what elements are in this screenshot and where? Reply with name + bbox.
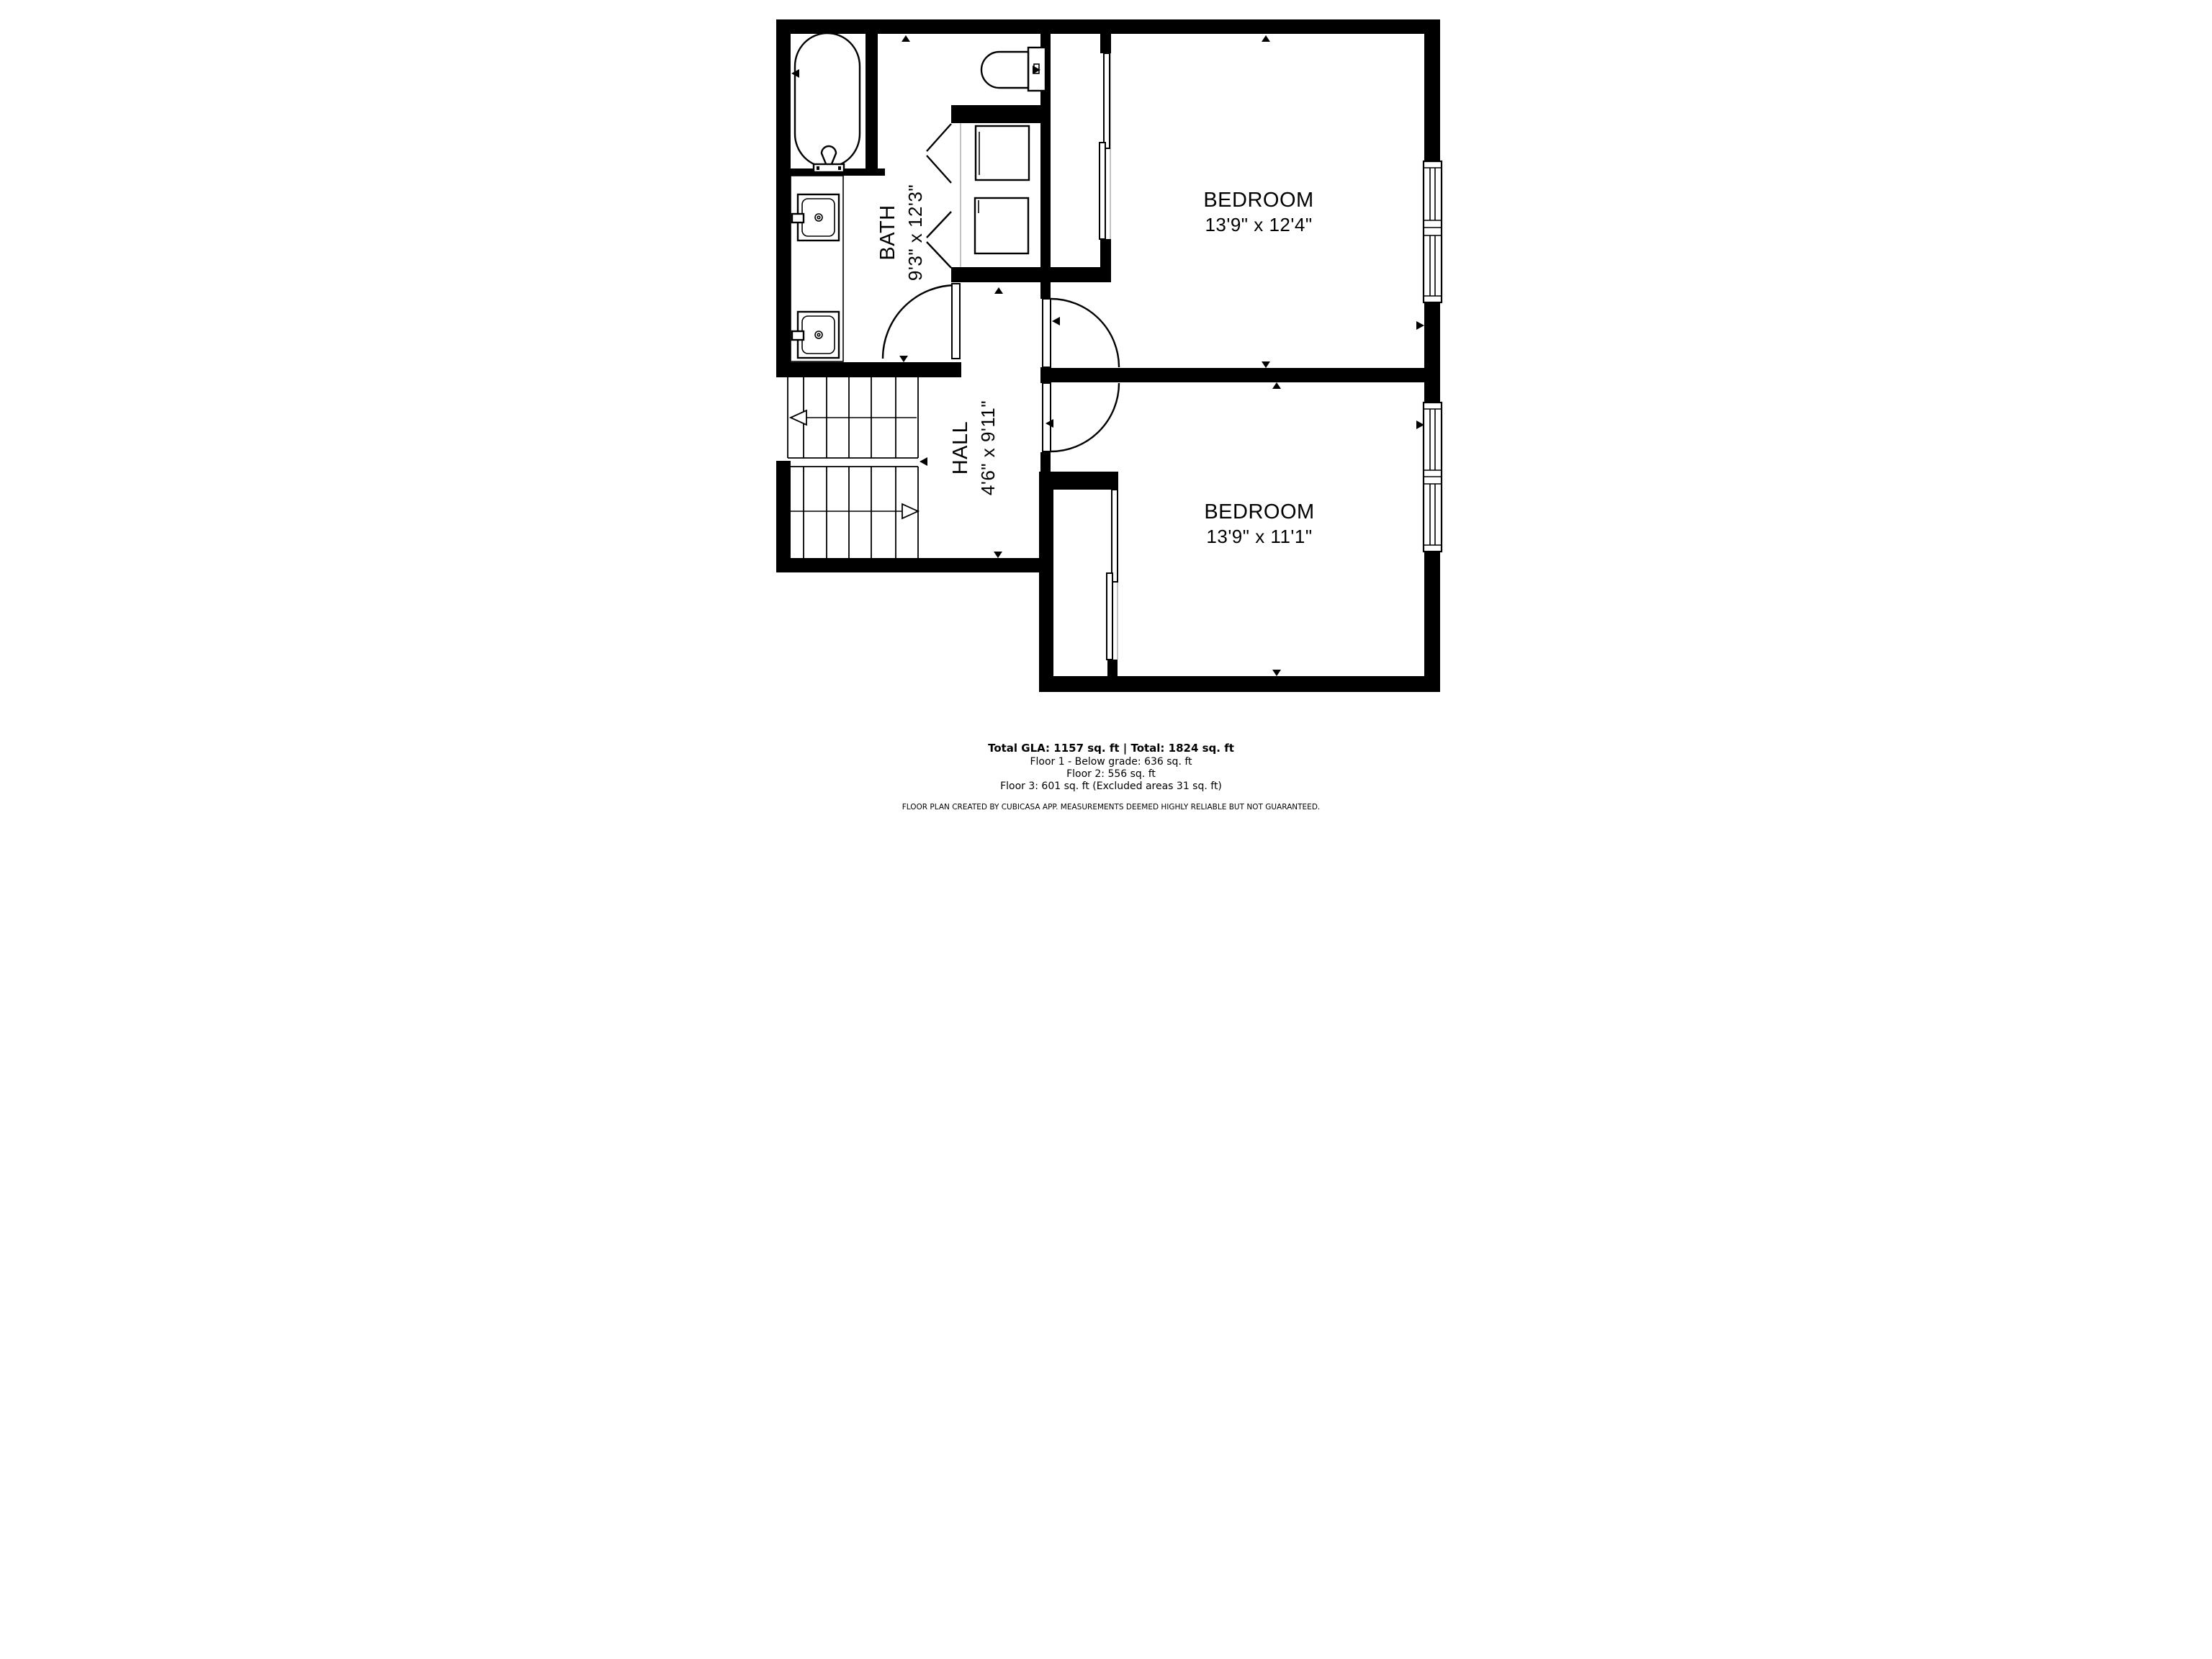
- wall-hall-east-b: [1040, 367, 1051, 383]
- room-label-bedroom-bottom: BEDROOM: [1204, 500, 1314, 523]
- marker-right-bedroom-top-window: [1416, 321, 1424, 330]
- stair-arrow-up-head: [791, 410, 806, 425]
- closet-shelf-unit-2: [975, 198, 1028, 253]
- sink-faucet: [792, 214, 804, 222]
- slider-panel: [1107, 573, 1112, 660]
- window-frame: [1424, 161, 1442, 302]
- wall-closet-nook-top: [951, 105, 1051, 123]
- room-dims-bedroom-top: 13'9" x 12'4": [1205, 214, 1312, 235]
- marker-left-closet1: [1052, 317, 1060, 325]
- bifold-door-lower: [927, 212, 951, 268]
- stair-landing-lines: [788, 458, 918, 467]
- marker-up-hall-top: [994, 287, 1003, 294]
- vanity: [791, 176, 843, 361]
- summary-floor2: Floor 2: 556 sq. ft: [1066, 768, 1156, 780]
- staircase: [788, 377, 918, 558]
- wall-bath-bottom: [776, 362, 961, 377]
- wall-closet1-stub-bottom: [1100, 239, 1111, 267]
- vanity-sink-2: [792, 312, 839, 358]
- vanity-sink-1: [792, 194, 839, 240]
- room-label-bath: BATH: [876, 204, 899, 260]
- wall-closet2-slider-stub: [1107, 660, 1118, 676]
- slider-panel: [1104, 53, 1110, 148]
- bathtub-faucet-tick: [838, 166, 841, 170]
- closet-shelf-unit-1: [976, 126, 1029, 180]
- bathtub-faucet-tick: [817, 166, 819, 170]
- bedroom-top-door-leaf: [1043, 299, 1051, 367]
- wall-tub-alcove-right: [866, 32, 878, 176]
- summary-total: Total GLA: 1157 sq. ft | Total: 1824 sq.…: [988, 742, 1234, 755]
- disclaimer-text: FLOOR PLAN CREATED BY CUBICASA APP. MEAS…: [902, 803, 1321, 811]
- sink-faucet: [792, 331, 804, 340]
- bifold-door-upper: [927, 124, 951, 183]
- wall-closet-band: [951, 267, 1111, 282]
- bedroom-bottom-door-leaf: [1043, 383, 1051, 451]
- closet-slider-bedroom-bottom: [1107, 490, 1118, 660]
- stair-treads-lower: [788, 467, 918, 558]
- bath-closet-nook: [927, 123, 1029, 268]
- bath-door-leaf: [952, 284, 960, 359]
- wall-bedroom-divider: [1051, 368, 1424, 382]
- floor-plan-canvas: BEDROOM 13'9" x 12'4" BEDROOM 13'9" x 11…: [553, 0, 1659, 829]
- wall-hall-east-c: [1040, 452, 1051, 472]
- marker-up-divider: [1272, 382, 1281, 389]
- room-dims-hall: 4'6" x 9'11": [977, 400, 999, 495]
- summary-floor3: Floor 3: 601 sq. ft (Excluded areas 31 s…: [1000, 781, 1222, 792]
- wall-exterior-west-lower: [1039, 490, 1053, 692]
- toilet-bowl: [981, 52, 1028, 88]
- marker-left-stair-landing: [920, 457, 927, 466]
- window-bedroom-top: [1424, 161, 1442, 302]
- wall-closet2-top: [1039, 472, 1118, 490]
- wall-exterior-left-lower: [776, 461, 791, 572]
- bathtub: [795, 33, 860, 172]
- floor-plan-page: BEDROOM 13'9" x 12'4" BEDROOM 13'9" x 11…: [553, 0, 1659, 829]
- room-dims-bath: 9'3" x 12'3": [904, 184, 926, 281]
- slider-panel: [1100, 143, 1105, 239]
- marker-up-bedroom-top: [1262, 35, 1270, 42]
- closet-slider-bedroom-top: [1100, 53, 1110, 239]
- wall-exterior-left-upper: [776, 19, 791, 362]
- room-label-bedroom-top: BEDROOM: [1203, 189, 1313, 212]
- wall-hall-east-a: [1040, 282, 1051, 299]
- area-summary: Total GLA: 1157 sq. ft | Total: 1824 sq.…: [902, 742, 1321, 811]
- wall-hall-bottom: [776, 558, 1040, 572]
- bath-door-arc: [883, 285, 956, 359]
- stair-arrow-down-head: [902, 504, 918, 518]
- slider-panel: [1112, 490, 1118, 582]
- marker-down-divider: [1262, 361, 1270, 368]
- bedroom-top-door: [1043, 299, 1119, 367]
- bath-door: [883, 284, 960, 359]
- summary-floor1: Floor 1 - Below grade: 636 sq. ft: [1030, 756, 1192, 768]
- bedroom-bottom-door-arc: [1051, 383, 1119, 451]
- marker-down-hall-bottom: [994, 552, 1002, 558]
- wall-exterior-top: [776, 19, 1440, 34]
- marker-down-bedroom-bottom: [1272, 670, 1281, 676]
- marker-down-bath-bottom: [899, 356, 908, 362]
- wall-exterior-right: [1424, 19, 1440, 692]
- room-label-hall: HALL: [949, 421, 972, 475]
- window-bedroom-bottom: [1424, 403, 1442, 552]
- bedroom-bottom-door: [1043, 383, 1119, 451]
- wall-exterior-bottom: [1039, 676, 1440, 692]
- wall-closet1-stub-top: [1100, 34, 1111, 53]
- room-dims-bedroom-bottom: 13'9" x 11'1": [1206, 526, 1312, 547]
- marker-up-bath-top: [902, 35, 910, 42]
- bedroom-top-door-arc: [1051, 299, 1119, 367]
